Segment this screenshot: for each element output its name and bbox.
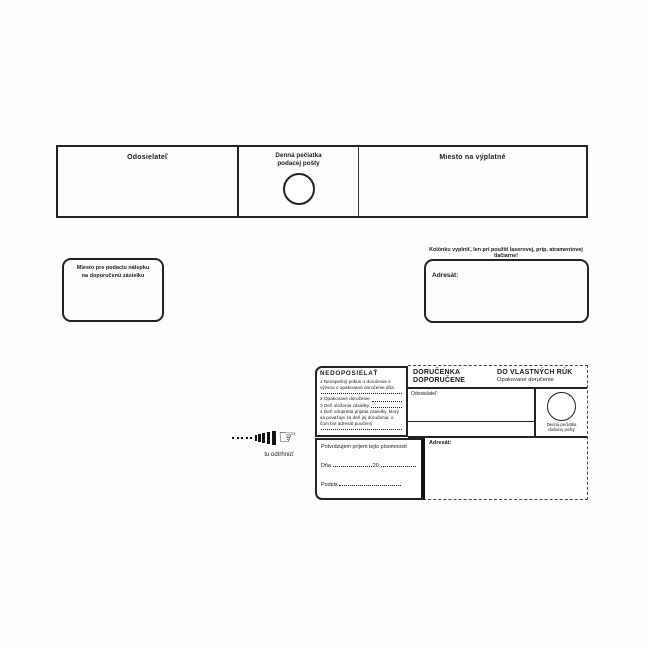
delivery-stamp-caption-line2: dodacej pošty (536, 427, 587, 432)
posting-stamp-circle-icon (283, 173, 315, 205)
sticker-box-label-line2: na doporučenú zásielku (64, 273, 162, 281)
sender-label: Odosielateľ (58, 154, 237, 161)
sticker-box-label-line1: Miesto pre podaciu nálepku (64, 265, 162, 273)
addressee-box-label: Adresát: (432, 272, 458, 279)
delivery-card-header: DORUČENKA DOPORUČENE DO VLASTNÝCH RÚK Op… (408, 366, 587, 389)
date-label: Dňa (321, 463, 331, 469)
nedoposielat-box: NEDOPOSIELAŤ 1 Neúspešný pokus o doručen… (315, 366, 408, 437)
posting-stamp-label-line1: Denná pečiatka (239, 152, 358, 160)
sender-divider-line (408, 421, 534, 422)
tear-off-label: tu odtrhnúť (240, 452, 318, 458)
dotted-fill-line (339, 482, 401, 486)
card-sender-cell: Odosielateľ: (408, 389, 536, 436)
posting-stamp-label-line2: podacej pošty (239, 160, 358, 168)
card-addressee-area: Adresát: (408, 438, 587, 499)
top-strip-postage-cell: Miesto na výplatné (359, 147, 586, 216)
delivery-stamp-circle-icon (547, 392, 576, 421)
dotted-fill-line (321, 429, 402, 430)
scanned-postal-form: Odosielateľ Denná pečiatka podacej pošty… (0, 0, 650, 650)
dotted-fill-line (372, 396, 402, 401)
dotted-fill-line (381, 463, 416, 467)
sticker-box: Miesto pre podaciu nálepku na doporučenú… (62, 258, 164, 322)
top-strip: Odosielateľ Denná pečiatka podacej pošty… (56, 145, 588, 218)
card-addressee-label: Adresát: (429, 440, 451, 446)
card-sender-label: Odosielateľ: (411, 391, 438, 397)
confirmation-box: Potvrdzujem príjem tejto písomnosti Dňa … (315, 438, 425, 500)
dotted-fill-line (333, 463, 372, 467)
top-strip-stamp-cell: Denná pečiatka podacej pošty (239, 147, 359, 216)
card-title-doporucene: DOPORUČENE (413, 377, 497, 385)
dotted-fill-line (321, 393, 402, 394)
postage-label: Miesto na výplatné (359, 154, 586, 161)
card-title-do-vlastnych-ruk: DO VLASTNÝCH RÚK (497, 369, 573, 377)
nedoposielat-item-3: 3 Deň uloženia zásielky (320, 403, 369, 409)
addressee-box: Adresát: (424, 259, 589, 323)
card-sender-row: Odosielateľ: Denná pečiatka dodacej pošt… (408, 389, 587, 438)
confirmation-statement: Potvrdzujem príjem tejto písomnosti (321, 444, 417, 450)
nedoposielat-item-1: 1 Neúspešný pokus o doručenie s výzvou o… (320, 379, 403, 391)
card-stamp-cell: Denná pečiatka dodacej pošty (536, 389, 587, 436)
dotted-fill-line (371, 403, 402, 408)
pointing-hand-icon: ☞ (278, 428, 297, 448)
card-subtitle-opakovane-dorucenie: Opakované doručenie (497, 377, 573, 385)
top-strip-sender-cell: Odosielateľ (58, 147, 239, 216)
signature-label: Podpis (321, 482, 337, 488)
nedoposielat-title: NEDOPOSIELAŤ (320, 370, 403, 378)
delivery-card: DORUČENKA DOPORUČENE DO VLASTNÝCH RÚK Op… (408, 365, 588, 500)
year-label: 20 (373, 463, 379, 469)
tear-line-icon: ☞ (232, 427, 314, 449)
printer-note: Kolónku vyplniť, len pri použití laserov… (421, 247, 591, 259)
nedoposielat-item-4: 4 Deň odopretia prijatia zásielky, ktorý… (320, 409, 403, 427)
